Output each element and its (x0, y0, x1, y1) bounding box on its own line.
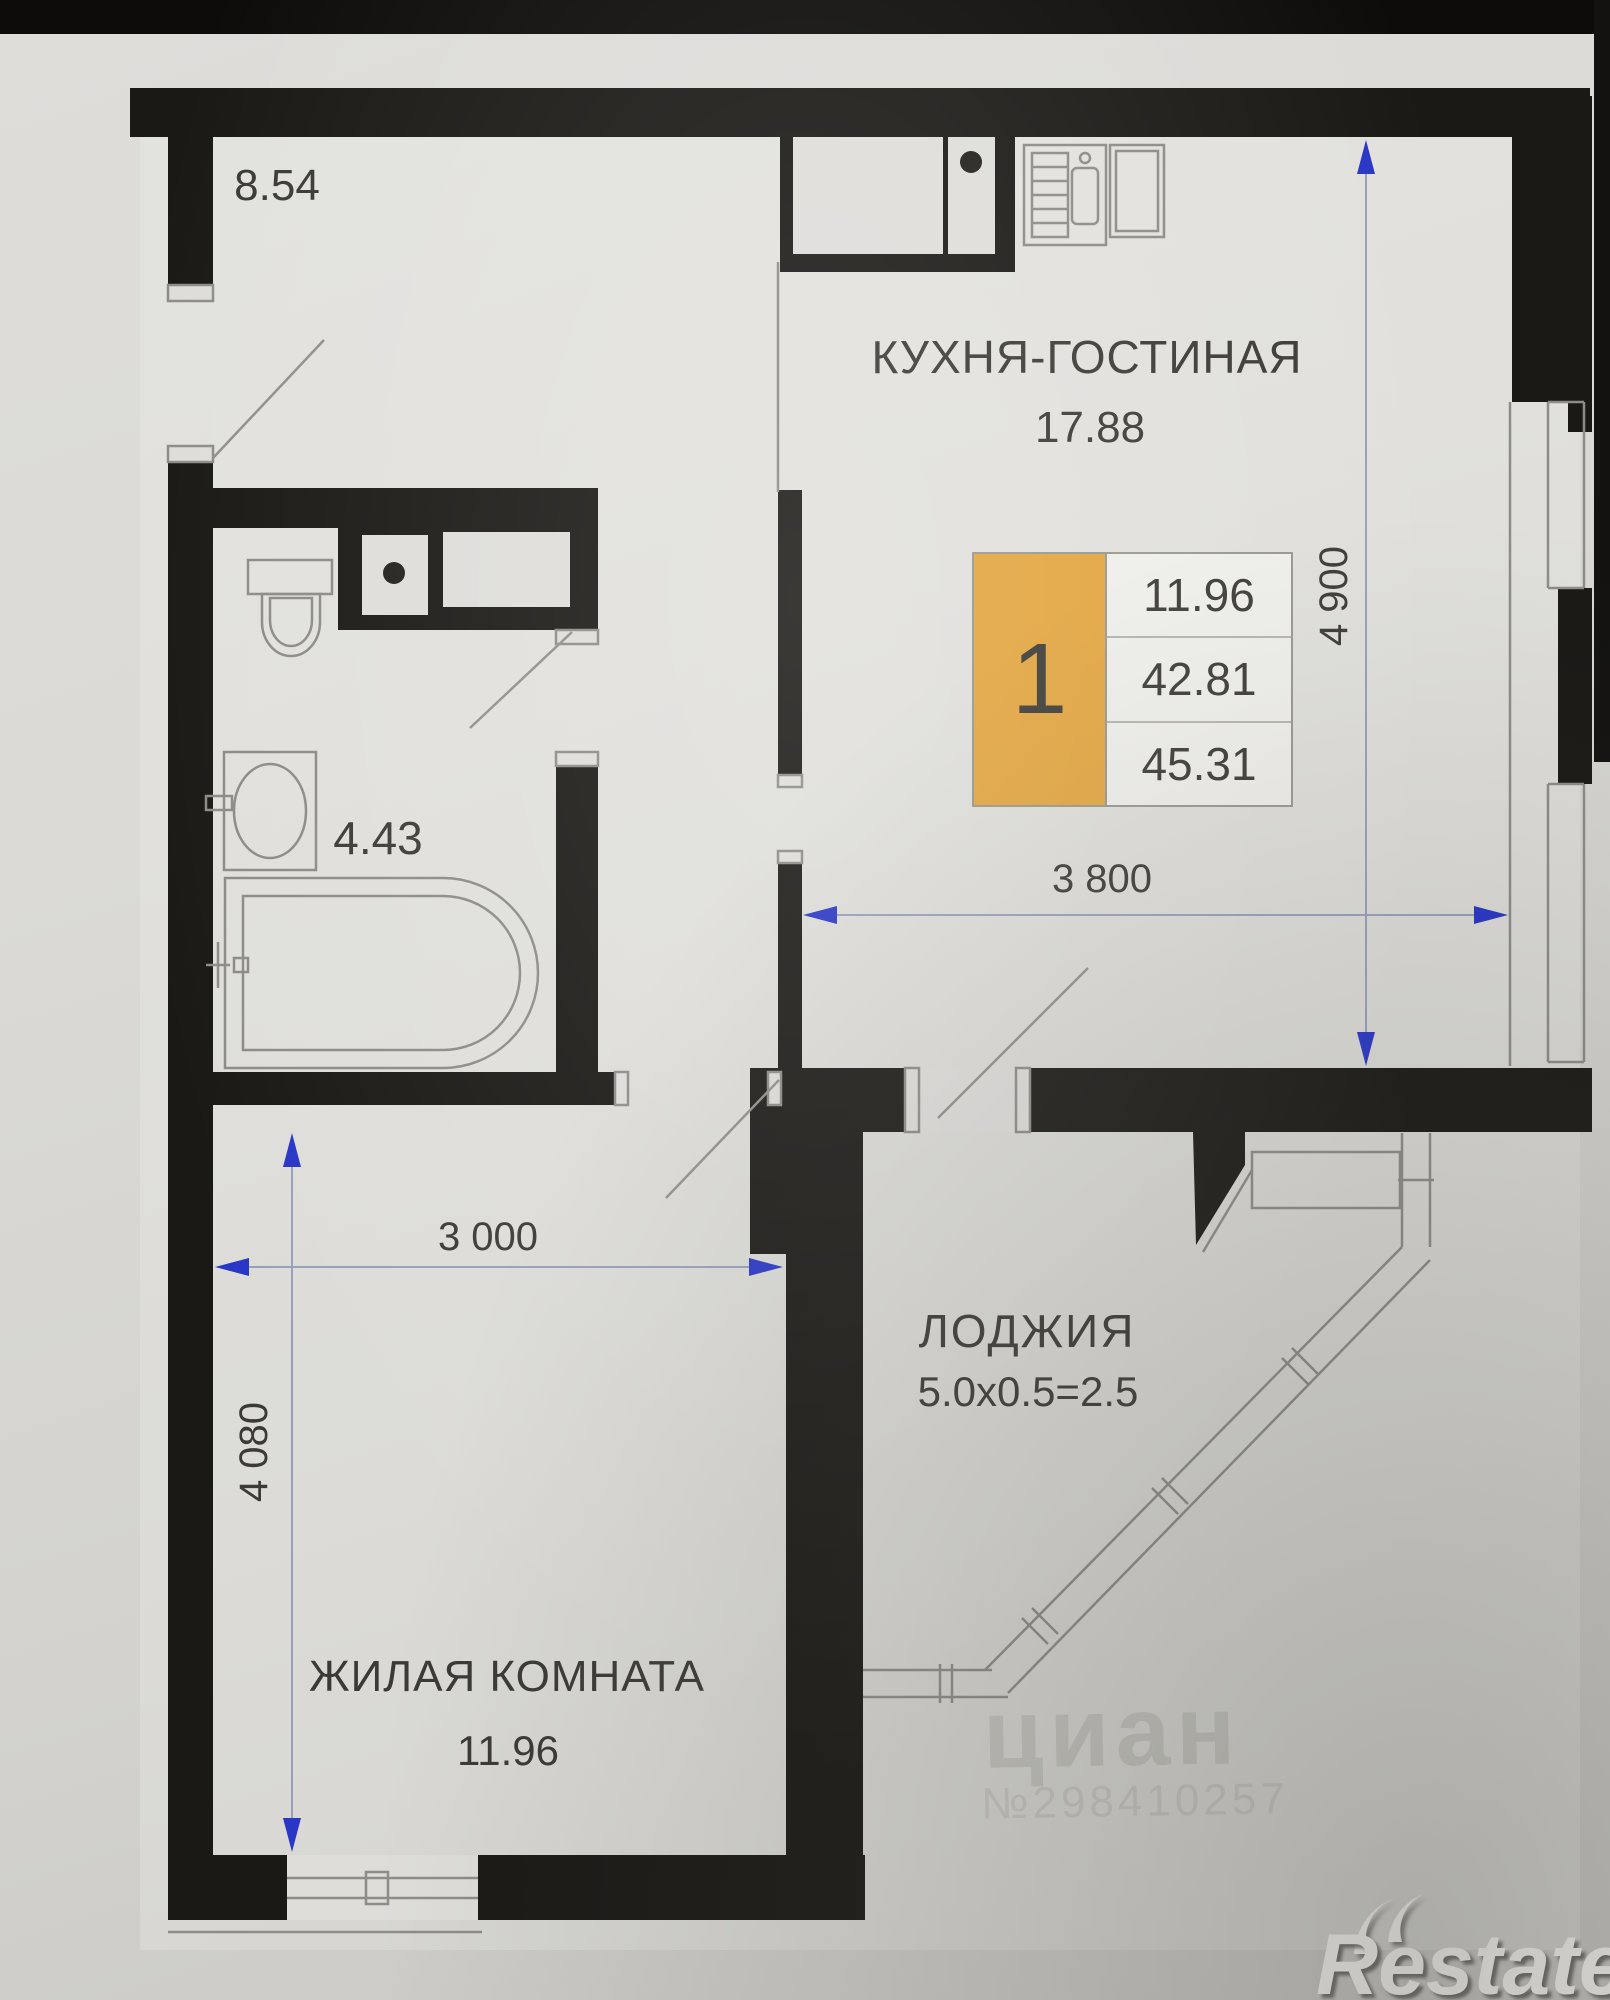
bottom-window-gap (287, 1855, 478, 1920)
wall-right-mid (1558, 588, 1592, 784)
wall-right-upper (1512, 88, 1590, 402)
photo-right-border (1594, 0, 1610, 762)
wall-bottom (168, 1855, 865, 1920)
loggia-door-frame (905, 1068, 919, 1132)
cian-watermark-number: №298410257 (981, 1774, 1289, 1829)
vent-dot-bathroom (383, 562, 405, 584)
wall-livingroom-top (168, 1072, 615, 1105)
restate-logo-text: Restate (1316, 1916, 1610, 2000)
wall-left-lower (168, 462, 213, 1920)
photo-top-border (0, 0, 1610, 34)
vent-dot-kitchen (960, 151, 982, 173)
living-room-name-label: ЖИЛАЯ КОМНАТА (309, 1655, 705, 1699)
floorplan-drawing (0, 0, 1610, 2000)
entry-door-frame (168, 285, 213, 301)
kitchen-door-frame (778, 775, 802, 787)
wall-bathroom-top (213, 488, 585, 528)
wall-bathroom-right-lower (556, 766, 598, 1072)
bathroom-area-label: 4.43 (333, 815, 423, 861)
wall-livingroom-right (786, 1132, 863, 1920)
dim-3800-label: 3 800 (1052, 859, 1152, 899)
loggia-name-label: ЛОДЖИЯ (919, 1308, 1136, 1354)
kitchen-living-area-label: 17.88 (1035, 406, 1145, 450)
kitchen-shaft (793, 137, 943, 254)
hallway-area-label: 8.54 (234, 164, 320, 208)
dim-3000-label: 3 000 (438, 1217, 538, 1257)
living-area-value: 11.96 (1107, 554, 1291, 636)
living-room-area-label: 11.96 (457, 1730, 559, 1772)
rooms-count-cell: 1 (974, 554, 1105, 805)
cian-watermark: циан (982, 1673, 1242, 1790)
wall-kitchen-left-upper (778, 490, 802, 775)
area-value: 42.81 (1107, 636, 1291, 720)
areas-table: 11.96 42.81 45.31 (1105, 554, 1291, 805)
dim-4080-label: 4 080 (234, 1402, 274, 1502)
duct-shaft (443, 532, 570, 607)
wall-kitchen-bottom (750, 1068, 1592, 1132)
wall-kitchen-left-lower (778, 863, 802, 1068)
livingroom-door-frame (615, 1072, 628, 1105)
apartment-info-box: 1 11.96 42.81 45.31 (972, 552, 1293, 807)
total-area-value: 45.31 (1107, 721, 1291, 805)
wall-left-upper (168, 137, 213, 285)
wall-top (130, 88, 1562, 137)
restate-logo: Restate (1272, 1902, 1610, 2000)
loggia-door-gap (905, 1068, 1030, 1132)
kitchen-living-name-label: КУХНЯ-ГОСТИНАЯ (871, 334, 1302, 380)
floorplan-photo: 8.54 КУХНЯ-ГОСТИНАЯ 17.88 4.43 ЛОДЖИЯ 5.… (0, 0, 1610, 2000)
loggia-calc-label: 5.0x0.5=2.5 (918, 1371, 1139, 1413)
dim-4900-label: 4 900 (1314, 546, 1354, 646)
